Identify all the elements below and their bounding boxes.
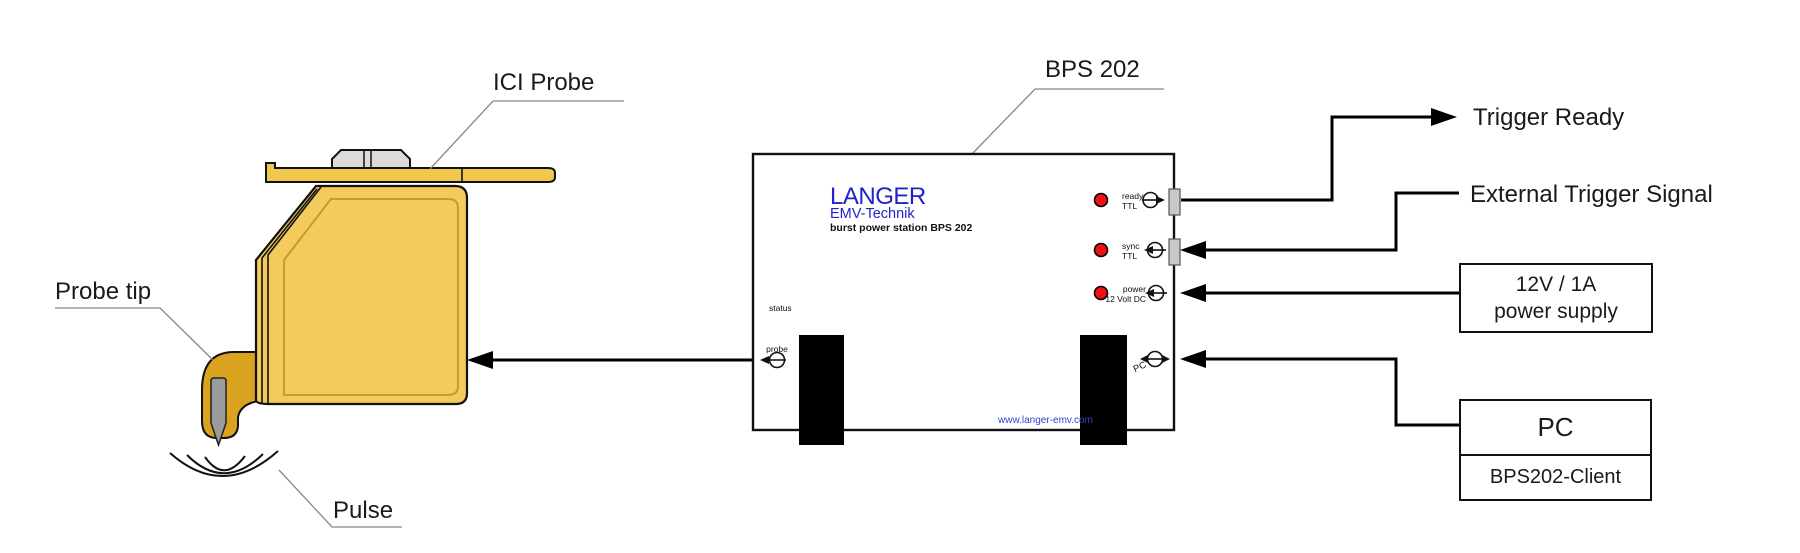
arrow-power-supply	[1180, 284, 1459, 302]
sync-ttl-line1: sync	[1122, 241, 1139, 251]
probe-tip-label: Probe tip	[55, 278, 151, 306]
trigger-ready-label: Trigger Ready	[1473, 104, 1624, 132]
bps-foot-right	[1080, 335, 1127, 445]
sync-connector-tab	[1169, 239, 1180, 265]
external-trigger-signal-label: External Trigger Signal	[1470, 181, 1713, 209]
ready-led	[1095, 194, 1108, 207]
pulse-waves-icon	[170, 451, 278, 476]
bps202-label: BPS 202	[1045, 56, 1140, 84]
power-supply-box: 12V / 1A power supply	[1459, 263, 1653, 333]
arrow-probe-cable	[467, 351, 753, 369]
sync-ttl-label: sync TTL	[1122, 242, 1139, 261]
power-12v-label: power 12 Volt DC	[1100, 285, 1146, 304]
ici-probe-label: ICI Probe	[493, 69, 594, 97]
pc-box: PC BPS202-Client	[1459, 399, 1652, 501]
ready-connector-tab	[1169, 189, 1180, 215]
ready-ttl-line1: ready	[1122, 191, 1143, 201]
power-line1: power	[1123, 284, 1146, 294]
probe-body	[256, 186, 467, 404]
website-url: www.langer-emv.com	[998, 415, 1093, 426]
pulse-label: Pulse	[333, 497, 393, 525]
power-line2: 12 Volt DC	[1105, 294, 1146, 304]
status-port-label: status	[769, 304, 792, 314]
leader-ici-probe	[430, 101, 624, 169]
model-line: burst power station BPS 202	[830, 222, 972, 234]
leader-probe-tip	[55, 308, 213, 360]
power-supply-line2: power supply	[1494, 298, 1618, 325]
sync-ttl-line2: TTL	[1122, 251, 1137, 261]
sync-led	[1095, 244, 1108, 257]
diagram-canvas: ICI Probe Probe tip Pulse BPS 202 Trigge…	[0, 0, 1800, 553]
pc-box-title: PC	[1461, 401, 1650, 456]
arrow-pc	[1180, 350, 1459, 425]
langer-logo-subtitle: EMV-Technik	[830, 206, 915, 222]
arrow-trigger-ready	[1181, 108, 1457, 200]
bps-foot-left	[799, 335, 844, 445]
arrow-external-trigger	[1180, 193, 1459, 259]
probe-port-label: probe	[762, 345, 792, 355]
ready-ttl-label: ready TTL	[1122, 192, 1143, 211]
leader-bps202	[971, 89, 1164, 155]
ready-ttl-line2: TTL	[1122, 201, 1137, 211]
pc-box-subtitle: BPS202-Client	[1461, 456, 1650, 499]
power-supply-line1: 12V / 1A	[1516, 271, 1597, 298]
